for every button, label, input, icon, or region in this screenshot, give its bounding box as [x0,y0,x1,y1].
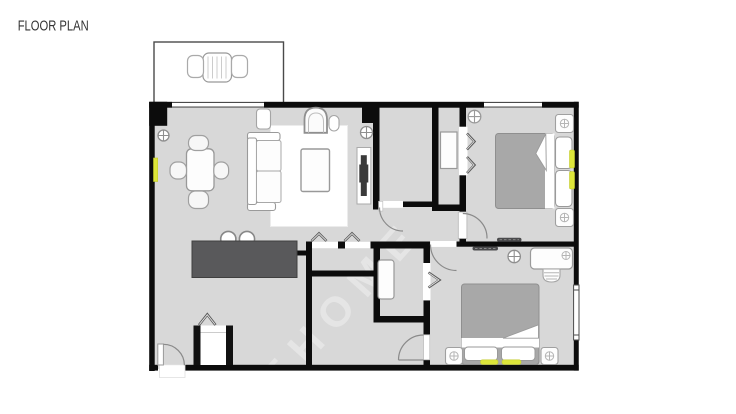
svg-text:FLOOR PLAN: FLOOR PLAN [18,18,89,35]
